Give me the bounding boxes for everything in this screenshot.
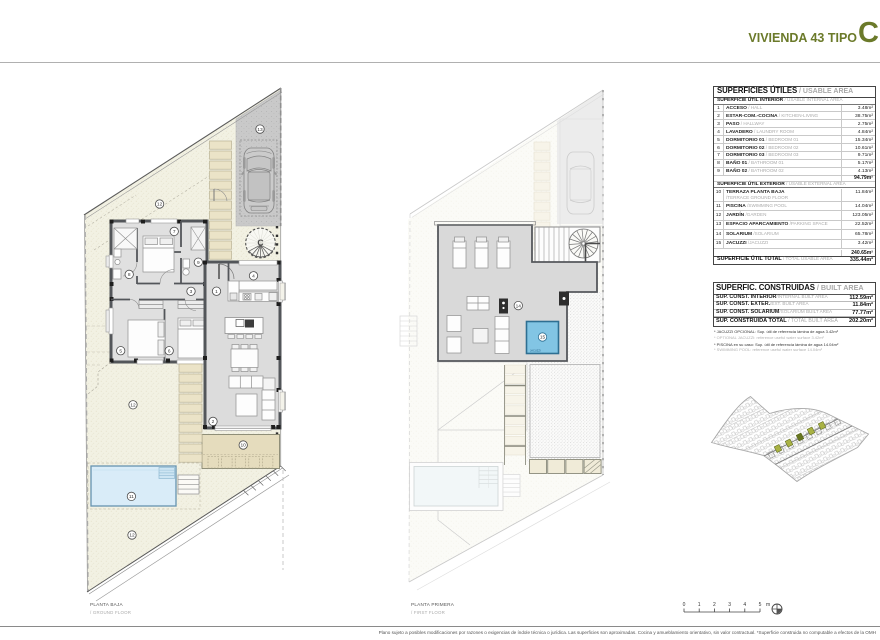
svg-text:14: 14 [516,303,522,309]
svg-text:4: 4 [743,602,746,608]
svg-text:11: 11 [129,494,134,500]
svg-text:8: 8 [128,272,131,278]
svg-text:2: 2 [713,602,716,608]
svg-text:4: 4 [252,274,255,280]
svg-text:C: C [257,238,263,248]
svg-text:JACUZZI: JACUZZI [530,349,541,353]
svg-text:6: 6 [168,348,171,354]
svg-text:12: 12 [130,403,136,409]
svg-text:1: 1 [215,289,218,295]
svg-text:3: 3 [190,289,193,295]
svg-text:15: 15 [540,335,546,341]
svg-text:10: 10 [241,443,247,449]
svg-text:5: 5 [759,602,762,608]
svg-text:7: 7 [173,229,176,235]
svg-text:12: 12 [157,202,163,208]
svg-text:m: m [766,602,770,608]
svg-text:5: 5 [119,348,122,354]
svg-text:9: 9 [197,260,200,266]
svg-text:12: 12 [129,533,135,539]
svg-text:13: 13 [257,127,263,133]
svg-text:0: 0 [683,602,686,608]
svg-text:3: 3 [728,602,731,608]
svg-text:1: 1 [698,602,701,608]
svg-text:2: 2 [212,419,215,425]
